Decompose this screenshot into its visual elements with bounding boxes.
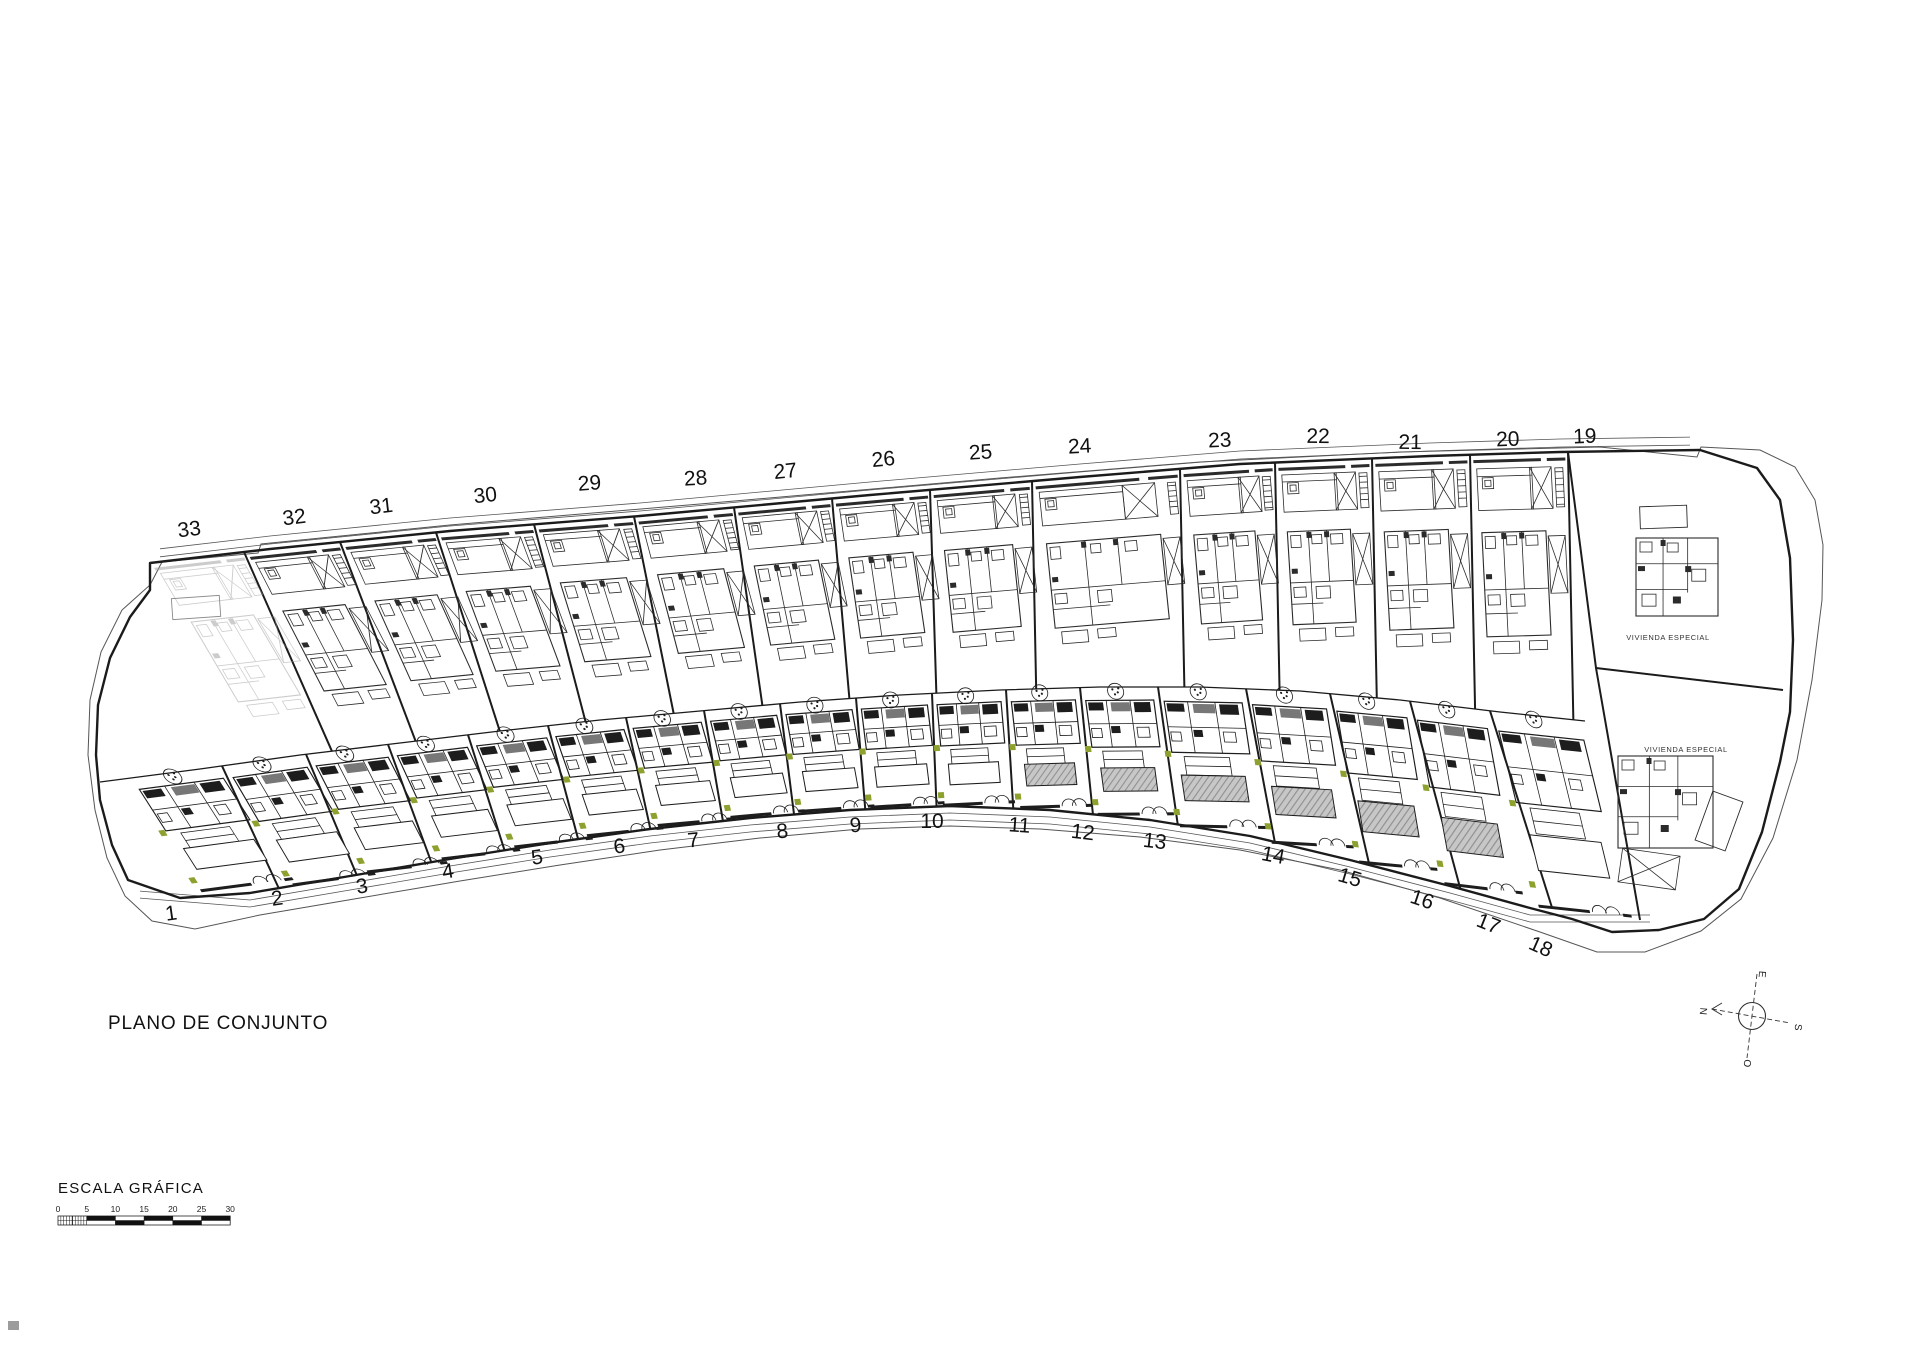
scale-bar-graphic: 051015202530 [50,1202,270,1242]
plot-20-plan [1473,459,1575,654]
scale-tick-label: 25 [197,1204,207,1214]
scale-tick-label: 20 [168,1204,178,1214]
compass-letter-west: O [1741,1059,1753,1068]
plot-number-22: 22 [1306,425,1330,448]
plot-number-28: 28 [683,466,708,490]
plot-number-8: 8 [776,820,790,844]
compass-letter-north: N [1697,1007,1709,1015]
compass-letter-south: S [1792,1023,1804,1031]
corner-swatch [8,1321,19,1330]
plot-divider [1470,455,1475,709]
plan-title: PLANO DE CONJUNTO [108,1013,328,1035]
plot-number-27: 27 [773,459,799,484]
plot-number-31: 31 [368,494,394,520]
plot-divider [340,542,416,741]
plot-number-24: 24 [1067,434,1092,458]
scale-tick-label: 0 [56,1204,61,1214]
plot-18-plan [1486,706,1632,916]
plot-32-plan [250,549,417,707]
special-plot-2-pool [1695,791,1743,851]
compass-rose: NESO [1697,970,1804,1067]
plot-divider [832,498,849,698]
plot-21-plan [1375,462,1477,647]
special-plot-label: VIVIENDA ESPECIAL [1626,633,1710,642]
plot-24-plan [1036,476,1194,645]
scale-tick-label: 5 [84,1204,89,1214]
special-plot-1-plan [1636,538,1718,616]
plot-22-plan [1278,466,1380,642]
plot-number-29: 29 [577,471,602,496]
plot-number-10: 10 [920,810,943,833]
plot-number-5: 5 [530,845,545,869]
plot-number-21: 21 [1398,431,1422,454]
plot-divider [244,552,332,751]
special-plot-2-plan [1618,756,1743,890]
plot-number-26: 26 [871,447,896,472]
plot-29-plan [539,524,679,678]
plot-number-4: 4 [440,859,456,884]
plot-number-12: 12 [1070,820,1096,846]
plot-number-1: 1 [164,901,179,925]
special-plot-divider [1596,668,1783,690]
plot-28-plan [639,515,772,670]
plot-number-20: 20 [1496,428,1520,452]
scale-tick-label: 30 [225,1204,235,1214]
plot-number-11: 11 [1008,813,1031,838]
compass-letter-east: E [1756,970,1768,978]
plot-number-14: 14 [1260,842,1287,869]
plot-number-13: 13 [1142,829,1168,855]
scale-bar-title: ESCALA GRÁFICA [58,1180,270,1197]
site-plan-page: VIVIENDA ESPECIALVIVIENDA ESPECIAL333231… [0,0,1920,1357]
plot-number-15: 15 [1335,863,1364,892]
plot-number-7: 7 [687,829,701,853]
plot-15-plan [1242,685,1353,847]
plot-number-2: 2 [270,886,285,910]
plot-33-pool [171,595,220,619]
plot-divider [436,532,500,731]
plot-10-plan [853,689,945,807]
site-plan-drawing: VIVIENDA ESPECIALVIVIENDA ESPECIAL333231… [0,0,1920,1357]
plot-number-23: 23 [1208,429,1232,453]
plot-number-30: 30 [472,483,498,508]
plot-11-plan [929,686,1015,806]
plot-25-plan [934,488,1046,648]
plot-divider [1032,481,1036,689]
plot-number-19: 19 [1573,425,1597,449]
scale-bar: ESCALA GRÁFICA 051015202530 [50,1180,270,1250]
plot-23-plan [1184,470,1287,641]
plot-17-plan [1406,697,1522,893]
special-plot-1-pool [1640,505,1688,529]
plot-number-9: 9 [849,814,862,838]
plot-number-6: 6 [612,834,626,858]
plot-number-3: 3 [354,874,369,899]
special-plot-label: VIVIENDA ESPECIAL [1644,745,1728,754]
scale-tick-label: 10 [111,1204,121,1214]
scale-tick-label: 15 [139,1204,149,1214]
plot-divider [734,507,762,705]
plot-number-25: 25 [968,440,993,464]
plot-number-32: 32 [281,505,307,531]
plot-12-plan [1003,684,1093,808]
plot-number-33: 33 [176,517,202,542]
